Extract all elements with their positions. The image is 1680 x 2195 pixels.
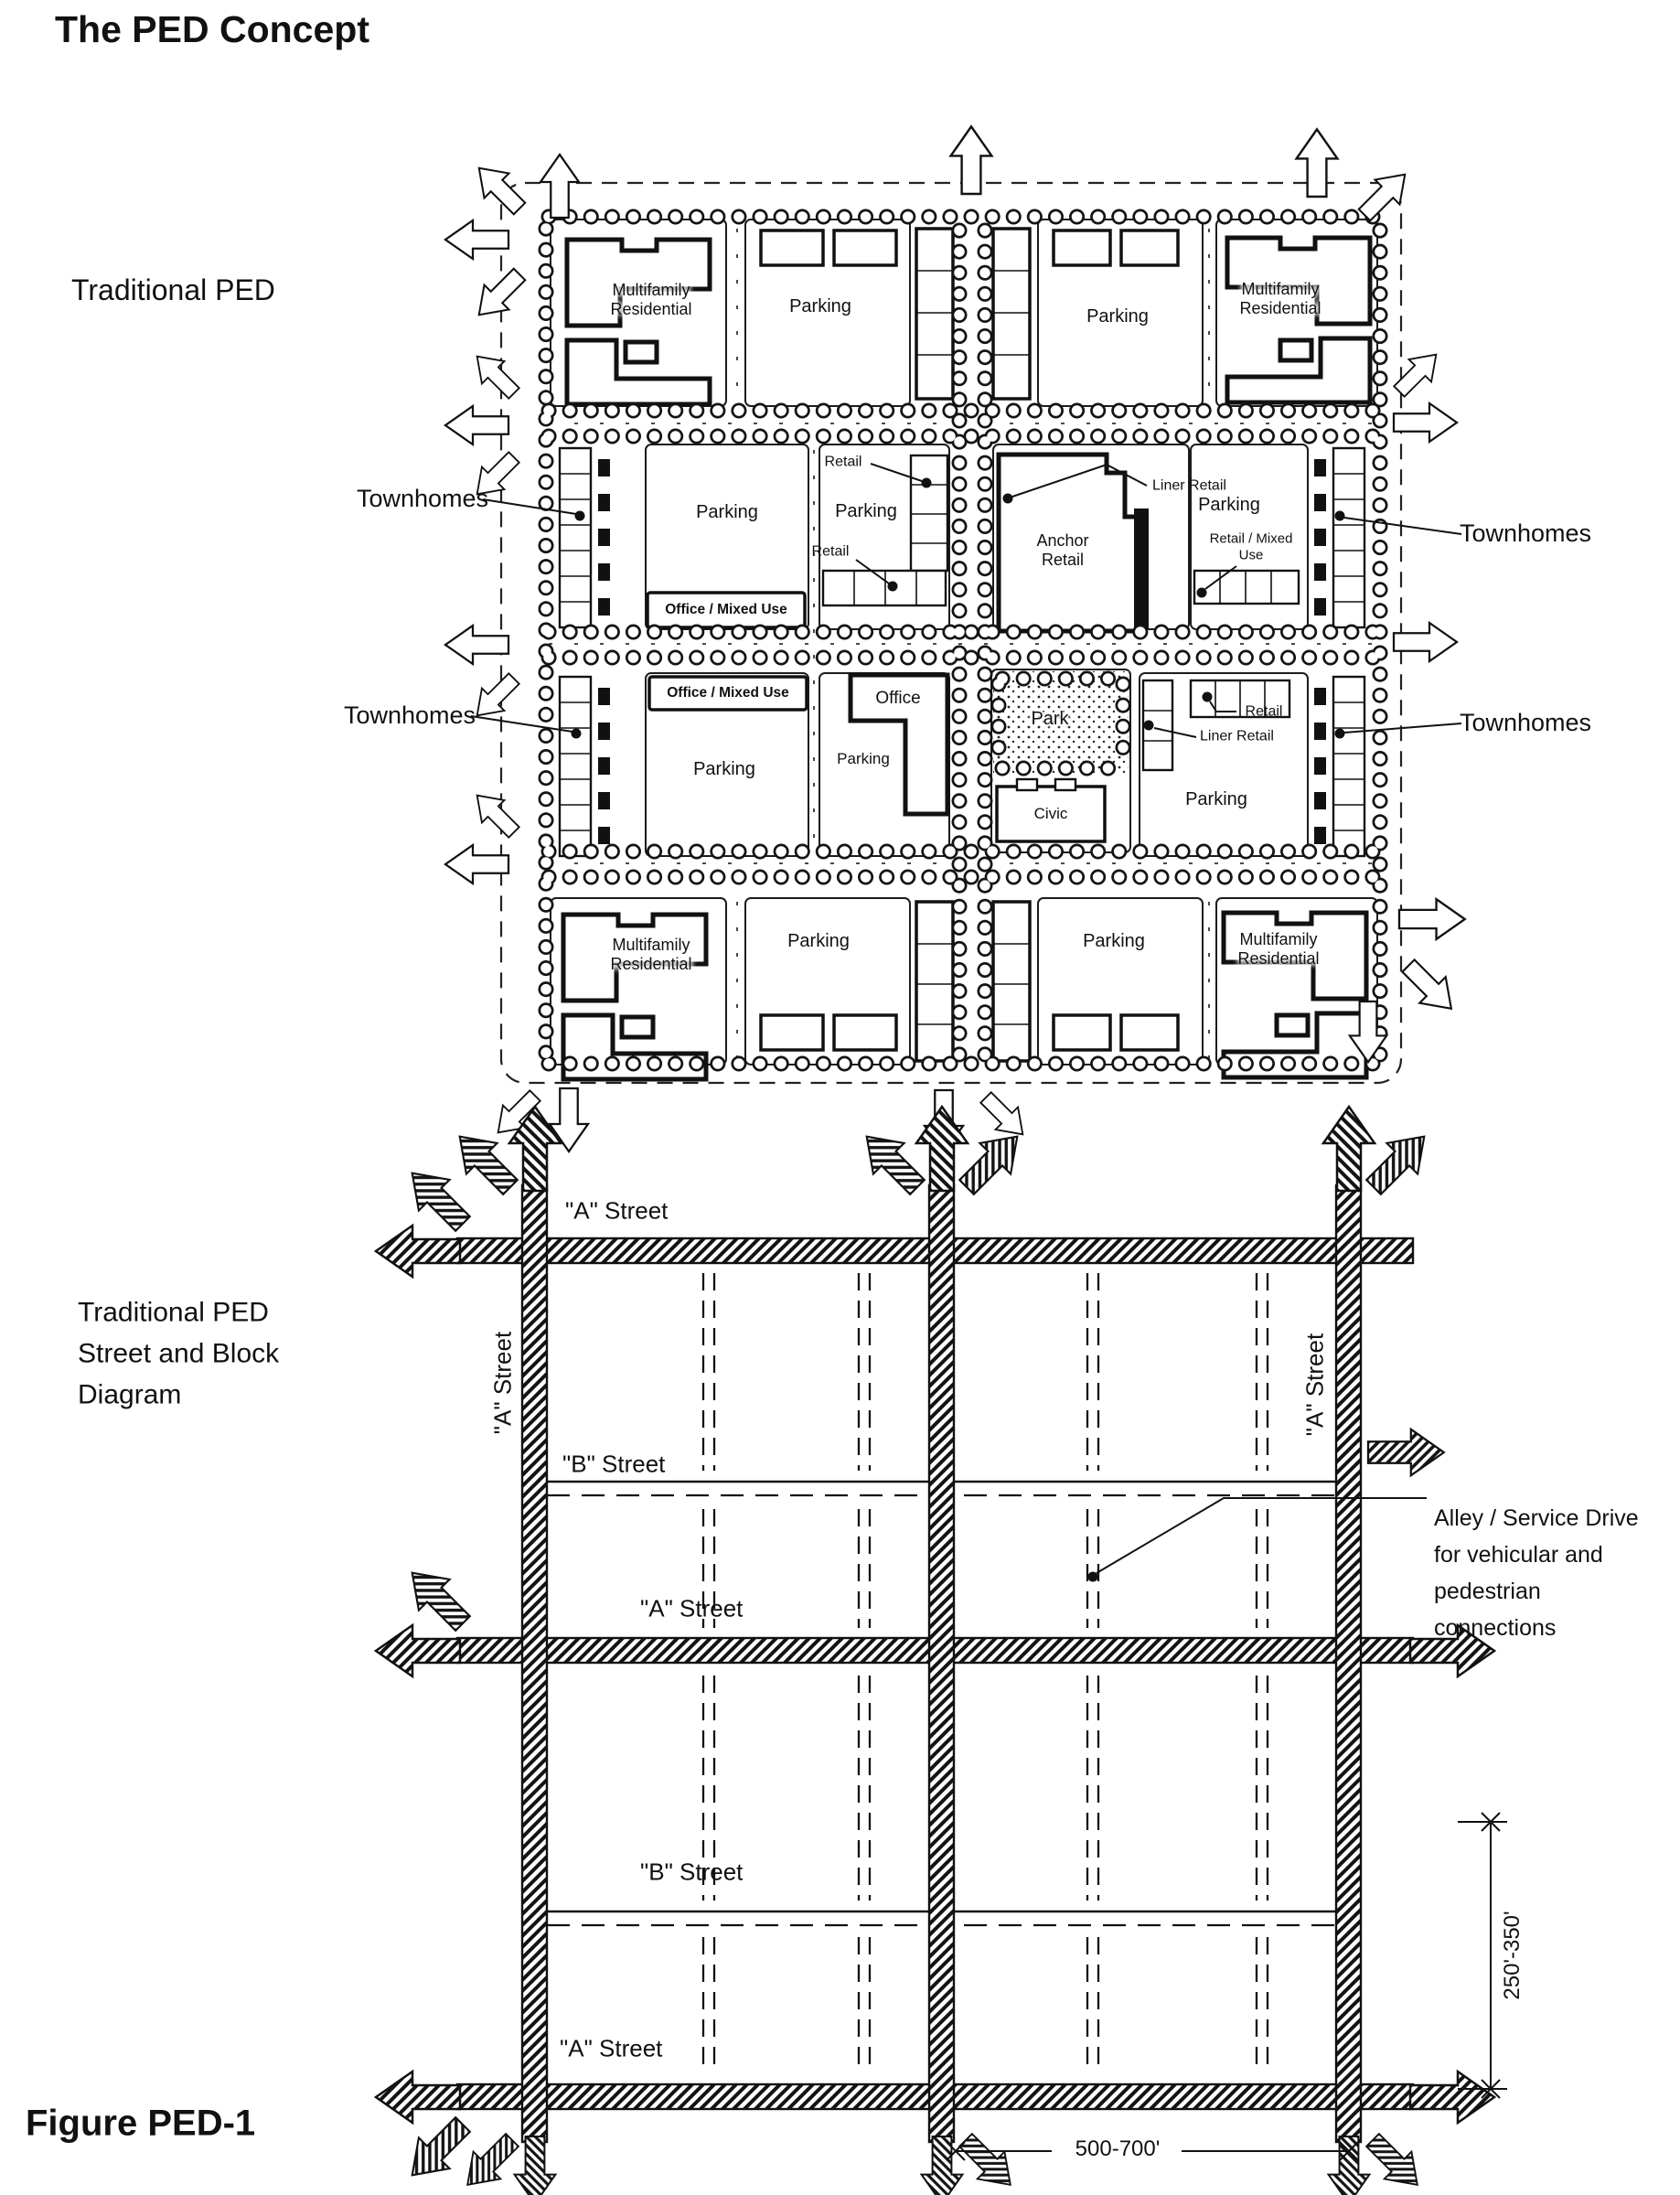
a-street-label-mid: "A" Street <box>640 1595 743 1623</box>
parking-label-r2-mid: Parking <box>835 501 897 523</box>
lower-caption: Traditional PED Street and Block Diagram <box>78 1292 279 1416</box>
office-label: Office <box>875 689 920 709</box>
townhomes-label-left-2: Townhomes <box>344 701 476 731</box>
parking-label-r3-left: Parking <box>693 759 755 781</box>
parking-label-r3-mid: Parking <box>837 750 890 768</box>
b-street-label-1: "B" Street <box>562 1451 665 1479</box>
parking-label-r1-right: Parking <box>1086 306 1149 328</box>
a-street-label-right-vertical: "A" Street <box>1301 1333 1330 1436</box>
retail-mixed-use-label: Retail / Mixed Use <box>1210 530 1293 562</box>
parking-label-r4-left: Parking <box>787 931 850 953</box>
civic-label: Civic <box>1034 805 1068 823</box>
lower-street-diagram <box>376 1107 1507 2195</box>
parking-label-r2-right: Parking <box>1198 495 1260 517</box>
retail-label-r2-2: Retail <box>812 544 850 562</box>
page-title: The PED Concept <box>55 7 369 51</box>
townhomes-label-right-2: Townhomes <box>1460 709 1591 738</box>
street-grid <box>457 1185 1413 2142</box>
townhomes-label-right-1: Townhomes <box>1460 519 1591 549</box>
parking-label-r3-right: Parking <box>1185 789 1247 811</box>
office-mixed-use-bar-r2: Office / Mix​ed Use <box>665 602 787 618</box>
alley-service-note: Alley / Service Drive for vehicular and … <box>1434 1500 1639 1646</box>
multifamily-label-tl: Multifamily Residential <box>610 281 691 319</box>
a-street-label-bottom: "A" Street <box>560 2035 662 2063</box>
park-label: Park <box>1031 709 1068 731</box>
upper-caption: Traditional PED <box>71 273 275 308</box>
multifamily-label-br: Multifamily Residential <box>1237 930 1319 969</box>
block-depth-dimension: 250'-350' <box>1500 1911 1525 1999</box>
diagram-canvas <box>0 0 1680 2195</box>
parking-label-r4-right: Parking <box>1083 931 1145 953</box>
liner-retail-label-r3: Liner Retail <box>1200 729 1274 746</box>
a-street-label-left-vertical: "A" Street <box>489 1332 518 1434</box>
figure-label: Figure PED-1 <box>26 2102 255 2145</box>
anchor-retail-label: Anchor Retail <box>1036 531 1088 570</box>
parking-label-r2-left: Parking <box>696 502 758 524</box>
block-width-dimension: 500-700' <box>1075 2136 1161 2162</box>
liner-retail-label-r2: Liner Retail <box>1152 478 1226 496</box>
office-mixed-use-bar-r3: Office / Mix​ed Use <box>667 685 789 701</box>
alley-lines <box>703 1273 1268 2074</box>
multifamily-label-tr: Multifamily Residential <box>1239 280 1321 318</box>
parking-label-r1-left: Parking <box>789 296 851 318</box>
b-street-label-2: "B" Street <box>640 1858 743 1887</box>
retail-label-r2-1: Retail <box>825 455 862 472</box>
a-street-label-top: "A" Street <box>565 1197 668 1226</box>
retail-label-r3: Retail <box>1246 704 1283 722</box>
townhomes-label-left-1: Townhomes <box>357 485 488 514</box>
figure-page: The PED Concept Traditional PED Townhome… <box>0 0 1680 2195</box>
multifamily-label-bl: Multifamily Residential <box>610 936 691 974</box>
